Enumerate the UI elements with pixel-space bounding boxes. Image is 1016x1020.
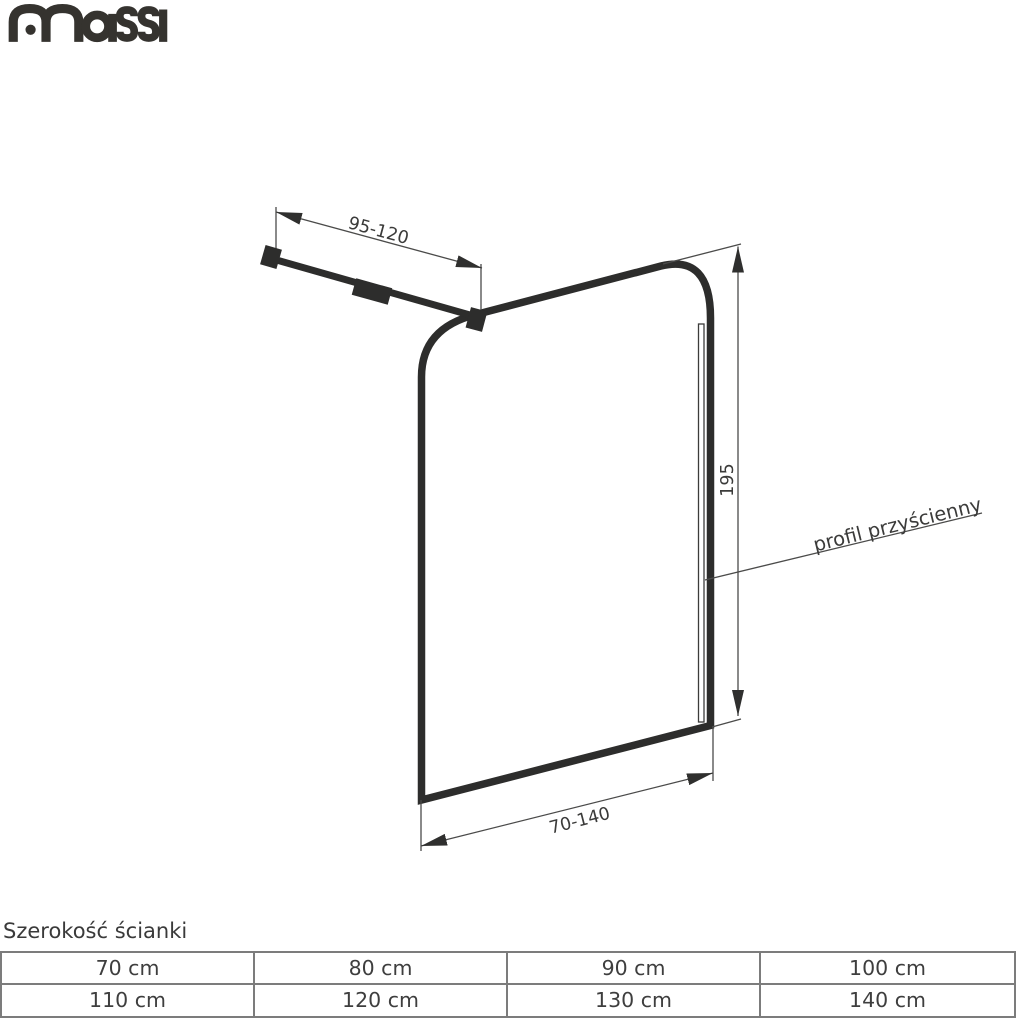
size-table-title: Szerokość ścianki xyxy=(3,919,187,943)
wall-profile-label: profil przyścienny xyxy=(811,493,984,556)
width-dimension-line xyxy=(421,773,713,846)
arm-mid-connector xyxy=(354,287,390,297)
size-cell: 80 cm xyxy=(255,953,508,985)
size-cell: 90 cm xyxy=(508,953,761,985)
arm-length-label: 95-120 xyxy=(346,213,411,249)
size-cell: 70 cm xyxy=(2,953,255,985)
wall-profile-strip xyxy=(699,324,705,722)
width-label: 70-140 xyxy=(547,804,612,839)
glass-panel xyxy=(422,264,711,800)
wall-bracket xyxy=(260,245,282,269)
size-cell: 140 cm xyxy=(761,985,1014,1017)
size-cell: 100 cm xyxy=(761,953,1014,985)
technical-diagram: 95-120 195 70-140 profil przyścienny xyxy=(0,0,1016,1020)
page: 95-120 195 70-140 profil przyścienny Sze… xyxy=(0,0,1016,1020)
glass-clamp xyxy=(466,307,488,332)
size-table: 70 cm 80 cm 90 cm 100 cm 110 cm 120 cm 1… xyxy=(0,951,1016,1018)
size-cell: 120 cm xyxy=(255,985,508,1017)
size-cell: 110 cm xyxy=(2,985,255,1017)
size-cell: 130 cm xyxy=(508,985,761,1017)
height-label: 195 xyxy=(718,463,738,496)
